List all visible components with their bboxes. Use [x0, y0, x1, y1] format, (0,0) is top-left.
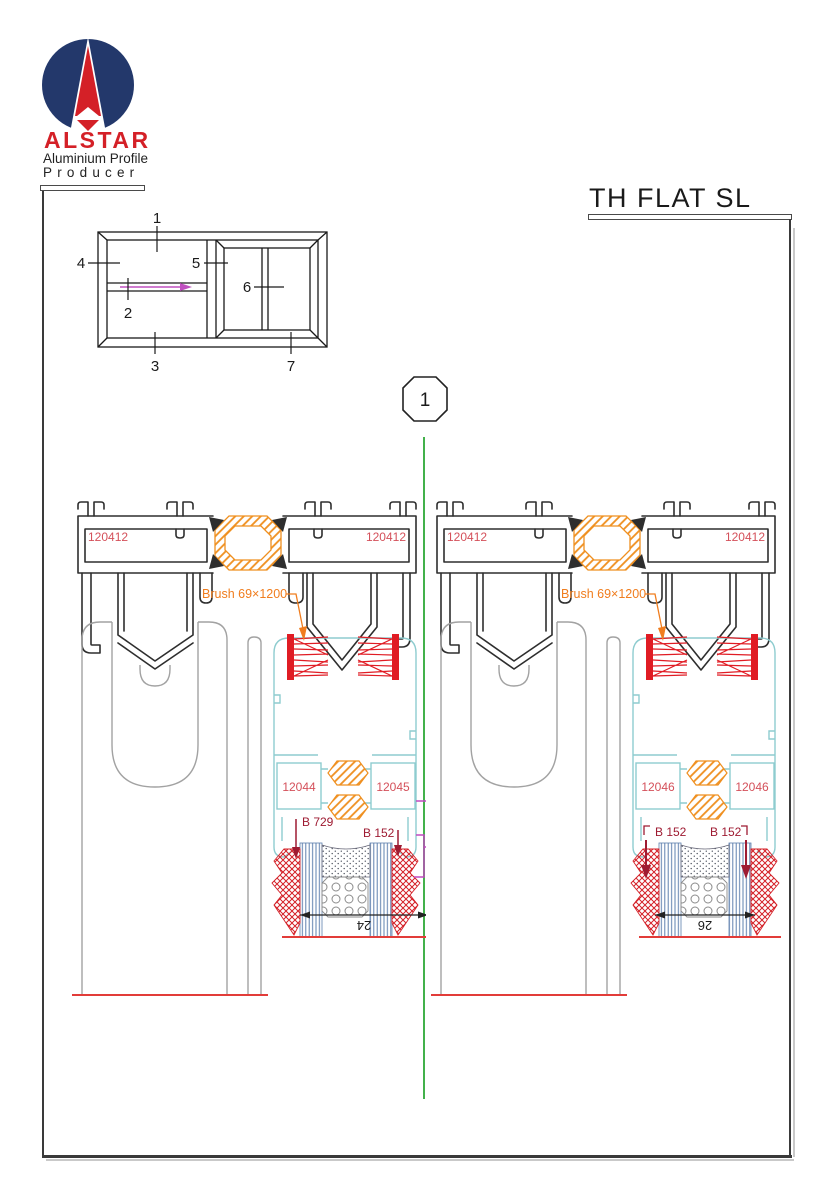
glazing-gasket-right	[392, 849, 420, 935]
chamber-label-right: 12045	[376, 780, 410, 794]
thermal-break-track	[574, 516, 640, 570]
brush-seal-left	[287, 634, 328, 680]
fixed-panel-profile	[441, 622, 620, 995]
frame-left	[42, 191, 44, 1157]
chamber-label-left: 12044	[282, 780, 316, 794]
schematic-label-7: 7	[287, 358, 295, 375]
base-lines	[431, 937, 781, 995]
track-label-right: 120412	[366, 530, 406, 544]
frame-bottom-shadow	[46, 1159, 794, 1161]
track-label-left: 120412	[447, 530, 487, 544]
track-mount-tabs	[437, 502, 775, 516]
thermal-break-sash	[328, 761, 368, 819]
schematic-label-2: 2	[124, 305, 132, 322]
glass-pane-left	[659, 843, 681, 937]
brush-callout-label: Brush 69×1200	[561, 587, 646, 601]
spacer-block	[322, 877, 368, 917]
cross-section-right: 120412 120412 12046 12046	[429, 485, 785, 1015]
gasket-label-left: B 152	[655, 825, 687, 839]
schematic-label-6: 6	[243, 279, 251, 296]
brush-callout-label: Brush 69×1200	[202, 587, 287, 601]
brush-seal-right	[717, 634, 758, 680]
track-center-fin	[666, 573, 736, 670]
glazing-gasket-right	[751, 849, 779, 935]
logo-wordmark: ALSTAR	[44, 129, 151, 152]
schematic-label-4: 4	[77, 255, 85, 272]
brush-seal-left	[646, 634, 687, 680]
track-panel-clip	[118, 573, 193, 669]
track-slide-wall	[607, 637, 620, 995]
schematic-label-5: 5	[192, 255, 200, 272]
dimension-value: 24	[357, 918, 371, 933]
title-underline-bar	[588, 214, 792, 220]
dimension-value: 26	[698, 918, 712, 933]
head-track-profile	[437, 502, 775, 670]
head-track-profile	[78, 502, 416, 670]
gasket-label-left: B 729	[302, 815, 334, 829]
schematic-label-1: 1	[153, 210, 161, 227]
schematic-frame	[98, 232, 327, 347]
schematic-right-bar	[262, 248, 268, 330]
track-center-fin	[307, 573, 377, 670]
sealant-bead	[322, 845, 370, 877]
track-slide-wall	[248, 637, 261, 995]
logo-subtitle-2: Producer	[43, 166, 139, 180]
track-wall-far-left	[82, 573, 100, 653]
logo-title-bar	[40, 185, 145, 191]
section-marker: 1	[398, 372, 452, 426]
track-label-right: 120412	[725, 530, 765, 544]
track-panel-clip	[477, 573, 552, 669]
glass-pane-right	[729, 843, 751, 937]
window-elevation-schematic: 1 2 3 4 5 6 7	[68, 208, 353, 378]
glass-pane-left	[300, 843, 322, 937]
schematic-slide-arrow	[120, 283, 192, 291]
schematic-mullion	[207, 240, 216, 338]
gasket-label-right: B 152	[363, 826, 395, 840]
track-label-left: 120412	[88, 530, 128, 544]
alstar-logo	[30, 30, 150, 135]
schematic-leaders	[88, 226, 291, 354]
base-lines	[72, 937, 426, 995]
frame-right	[789, 219, 791, 1157]
brush-seal-right	[358, 634, 399, 680]
brush-callout: Brush 69×1200	[202, 587, 307, 641]
schematic-label-3: 3	[151, 358, 159, 375]
glazing-unit	[300, 843, 392, 937]
chamber-label-right: 12046	[735, 780, 769, 794]
track-mount-tabs	[78, 502, 416, 516]
thermal-break-sash	[687, 761, 727, 819]
gasket-label-right: B 152	[710, 825, 742, 839]
glazing-gasket-left	[272, 849, 300, 935]
thermal-break-track	[215, 516, 281, 570]
sheet-title: TH FLAT SL	[589, 185, 752, 212]
track-wall-far-left	[441, 573, 459, 653]
schematic-right-sash	[224, 248, 310, 330]
cross-section-left: 120412 120412 12044 12045	[70, 485, 426, 1015]
sealant-bead	[681, 845, 729, 877]
frame-right-shadow	[793, 228, 795, 1157]
glass-pane-right	[370, 843, 392, 937]
spacer-block	[681, 877, 727, 917]
section-marker-number: 1	[420, 390, 431, 411]
chamber-label-left: 12046	[641, 780, 675, 794]
frame-bottom	[42, 1155, 792, 1158]
drawing-sheet: ALSTAR Aluminium Profile Producer TH FLA…	[0, 0, 829, 1200]
fixed-panel-profile	[82, 622, 261, 995]
brush-callout: Brush 69×1200	[561, 587, 666, 641]
